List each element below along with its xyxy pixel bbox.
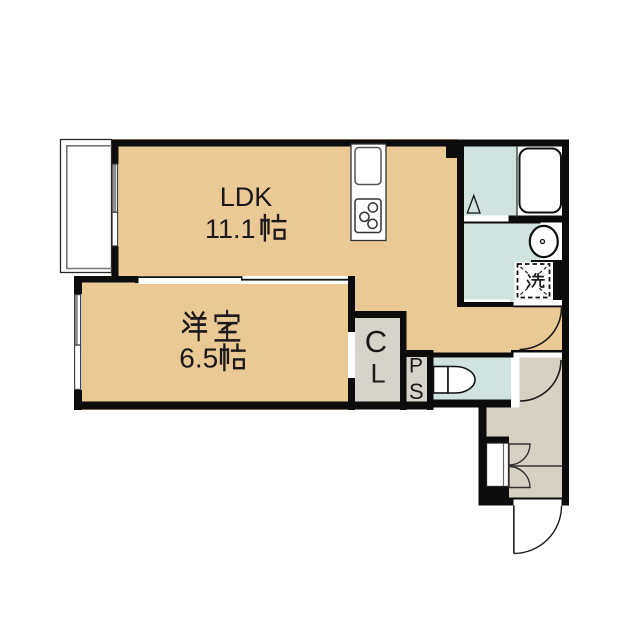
svg-text:S: S bbox=[409, 379, 424, 404]
svg-text:L: L bbox=[370, 359, 385, 389]
svg-text:LDK: LDK bbox=[220, 182, 273, 212]
svg-text:C: C bbox=[365, 324, 387, 359]
svg-text:6.5: 6.5 bbox=[179, 343, 218, 374]
svg-text:11.1: 11.1 bbox=[205, 214, 256, 244]
svg-text:P: P bbox=[409, 354, 423, 377]
